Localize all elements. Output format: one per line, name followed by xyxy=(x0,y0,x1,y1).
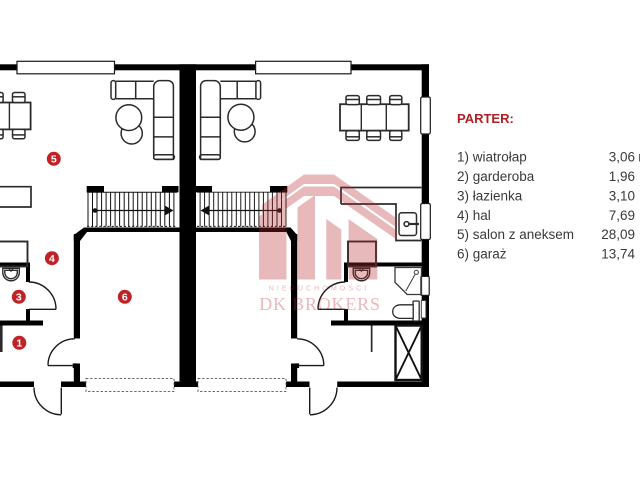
svg-text:3: 3 xyxy=(16,292,22,304)
svg-text:4) hal: 4) hal xyxy=(457,208,491,223)
svg-text:1: 1 xyxy=(16,338,22,350)
svg-text:7,69: 7,69 xyxy=(609,208,635,223)
svg-text:4: 4 xyxy=(49,253,55,265)
svg-text:1) wiatrołap: 1) wiatrołap xyxy=(457,150,527,165)
svg-text:13,74: 13,74 xyxy=(601,247,635,262)
svg-text:DK BROKERS: DK BROKERS xyxy=(259,294,381,314)
svg-text:3,10: 3,10 xyxy=(609,188,635,203)
svg-text:3,06: 3,06 xyxy=(609,150,635,165)
svg-text:NIERUCHOMOŚCI: NIERUCHOMOŚCI xyxy=(269,284,370,293)
svg-text:6) garaż: 6) garaż xyxy=(457,247,507,262)
svg-text:3) łazienka: 3) łazienka xyxy=(457,188,523,203)
svg-text:PARTER:: PARTER: xyxy=(457,111,514,126)
svg-text:6: 6 xyxy=(122,292,128,304)
svg-text:5: 5 xyxy=(51,154,57,166)
svg-text:2) garderoba: 2) garderoba xyxy=(457,169,535,184)
svg-text:1,96: 1,96 xyxy=(609,169,635,184)
svg-text:28,09: 28,09 xyxy=(601,227,635,242)
svg-text:5) salon z aneksem: 5) salon z aneksem xyxy=(457,227,574,242)
